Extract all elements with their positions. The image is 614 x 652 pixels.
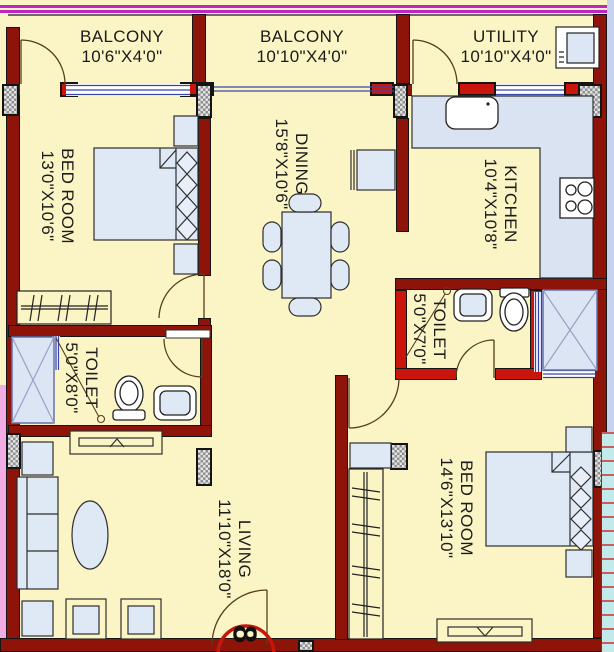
room-label-balcony-1: BALCONY 10'6"X4'0" <box>80 27 164 67</box>
bedside-table-icon <box>174 116 198 146</box>
bedside-table-icon <box>566 550 592 577</box>
room-label-bedroom-2: BED ROOM 14'6"X13'10" <box>436 458 476 559</box>
room-label-kitchen: KITCHEN 10'4"X10'8" <box>480 158 520 249</box>
side-table-icon <box>22 601 53 636</box>
room-dims: 10'10"X4'0" <box>460 47 551 67</box>
chair-icon <box>289 298 321 316</box>
room-label-utility: UTILITY 10'10"X4'0" <box>460 27 551 67</box>
chair-icon <box>66 599 106 639</box>
sink-icon <box>446 97 498 129</box>
door-swing-icon <box>456 340 494 378</box>
dining-table-icon <box>282 212 331 298</box>
room-dims: 10'10"X4'0" <box>256 47 347 67</box>
plan-drawing-layer <box>0 0 614 652</box>
room-name: BALCONY <box>80 27 164 47</box>
wardrobe-hanger-icon <box>17 291 111 324</box>
room-name: TOILET <box>81 342 101 413</box>
lobby-bench-icon <box>350 443 391 468</box>
room-name: LIVING <box>234 499 254 599</box>
washing-machine-icon <box>556 27 599 68</box>
room-name: BED ROOM <box>456 458 476 559</box>
room-name: BED ROOM <box>57 148 77 244</box>
toilet2-fixtures <box>454 288 529 331</box>
room-label-toilet-2: TOILET 5'0"X7'0" <box>409 293 449 364</box>
stove-icon <box>560 178 594 218</box>
leader-lines <box>56 288 451 423</box>
chair-icon <box>331 260 349 290</box>
room-dims: 5'0"X8'0" <box>61 342 81 413</box>
side-table-icon <box>22 442 53 475</box>
room-dims: 10'4"X10'8" <box>480 158 500 249</box>
door-swing-icon <box>164 339 202 377</box>
toilet1-fixtures <box>113 376 196 420</box>
chair-icon <box>263 260 281 290</box>
door-swing-icon <box>21 40 65 84</box>
room-dims: 14'6"X13'10" <box>436 458 456 559</box>
living-furniture <box>17 431 162 639</box>
bedside-table-icon <box>566 427 592 452</box>
door-swing-icon <box>413 40 457 84</box>
room-name: BALCONY <box>256 27 347 47</box>
chair-icon <box>331 222 349 252</box>
cabinet-icon <box>357 150 395 190</box>
room-label-living: LIVING 11'10"X18'0" <box>214 499 254 599</box>
room-dims: 10'6"X4'0" <box>80 47 164 67</box>
room-label-toilet-1: TOILET 5'0"X8'0" <box>61 342 101 413</box>
room-dims: 15'8"X10'6" <box>271 118 291 209</box>
floor-plan: BALCONY 10'6"X4'0" BALCONY 10'10"X4'0" U… <box>0 0 614 652</box>
sofa-icon <box>17 477 58 589</box>
door-swing-icon <box>159 274 204 318</box>
room-name: KITCHEN <box>500 158 520 249</box>
chair-icon <box>263 222 281 252</box>
unit-number-badge: 8 <box>225 625 264 643</box>
coffee-table-icon <box>72 501 108 569</box>
dresser-icon <box>437 619 532 642</box>
room-dims: 11'10"X18'0" <box>214 499 234 599</box>
room-name: UTILITY <box>460 27 551 47</box>
room-dims: 5'0"X7'0" <box>409 293 429 364</box>
chair-icon <box>121 599 161 639</box>
room-label-balcony-2: BALCONY 10'10"X4'0" <box>256 27 347 67</box>
wardrobe-hanger-icon <box>349 469 383 639</box>
room-label-bedroom-1: BED ROOM 13'0"X10'6" <box>37 148 77 244</box>
room-name: TOILET <box>429 293 449 364</box>
bedside-table-icon <box>174 244 198 274</box>
room-name: DINING <box>291 118 311 209</box>
door-swing-icon <box>349 378 399 428</box>
room-dims: 13'0"X10'6" <box>37 148 57 244</box>
room-label-dining: DINING 15'8"X10'6" <box>271 118 311 209</box>
